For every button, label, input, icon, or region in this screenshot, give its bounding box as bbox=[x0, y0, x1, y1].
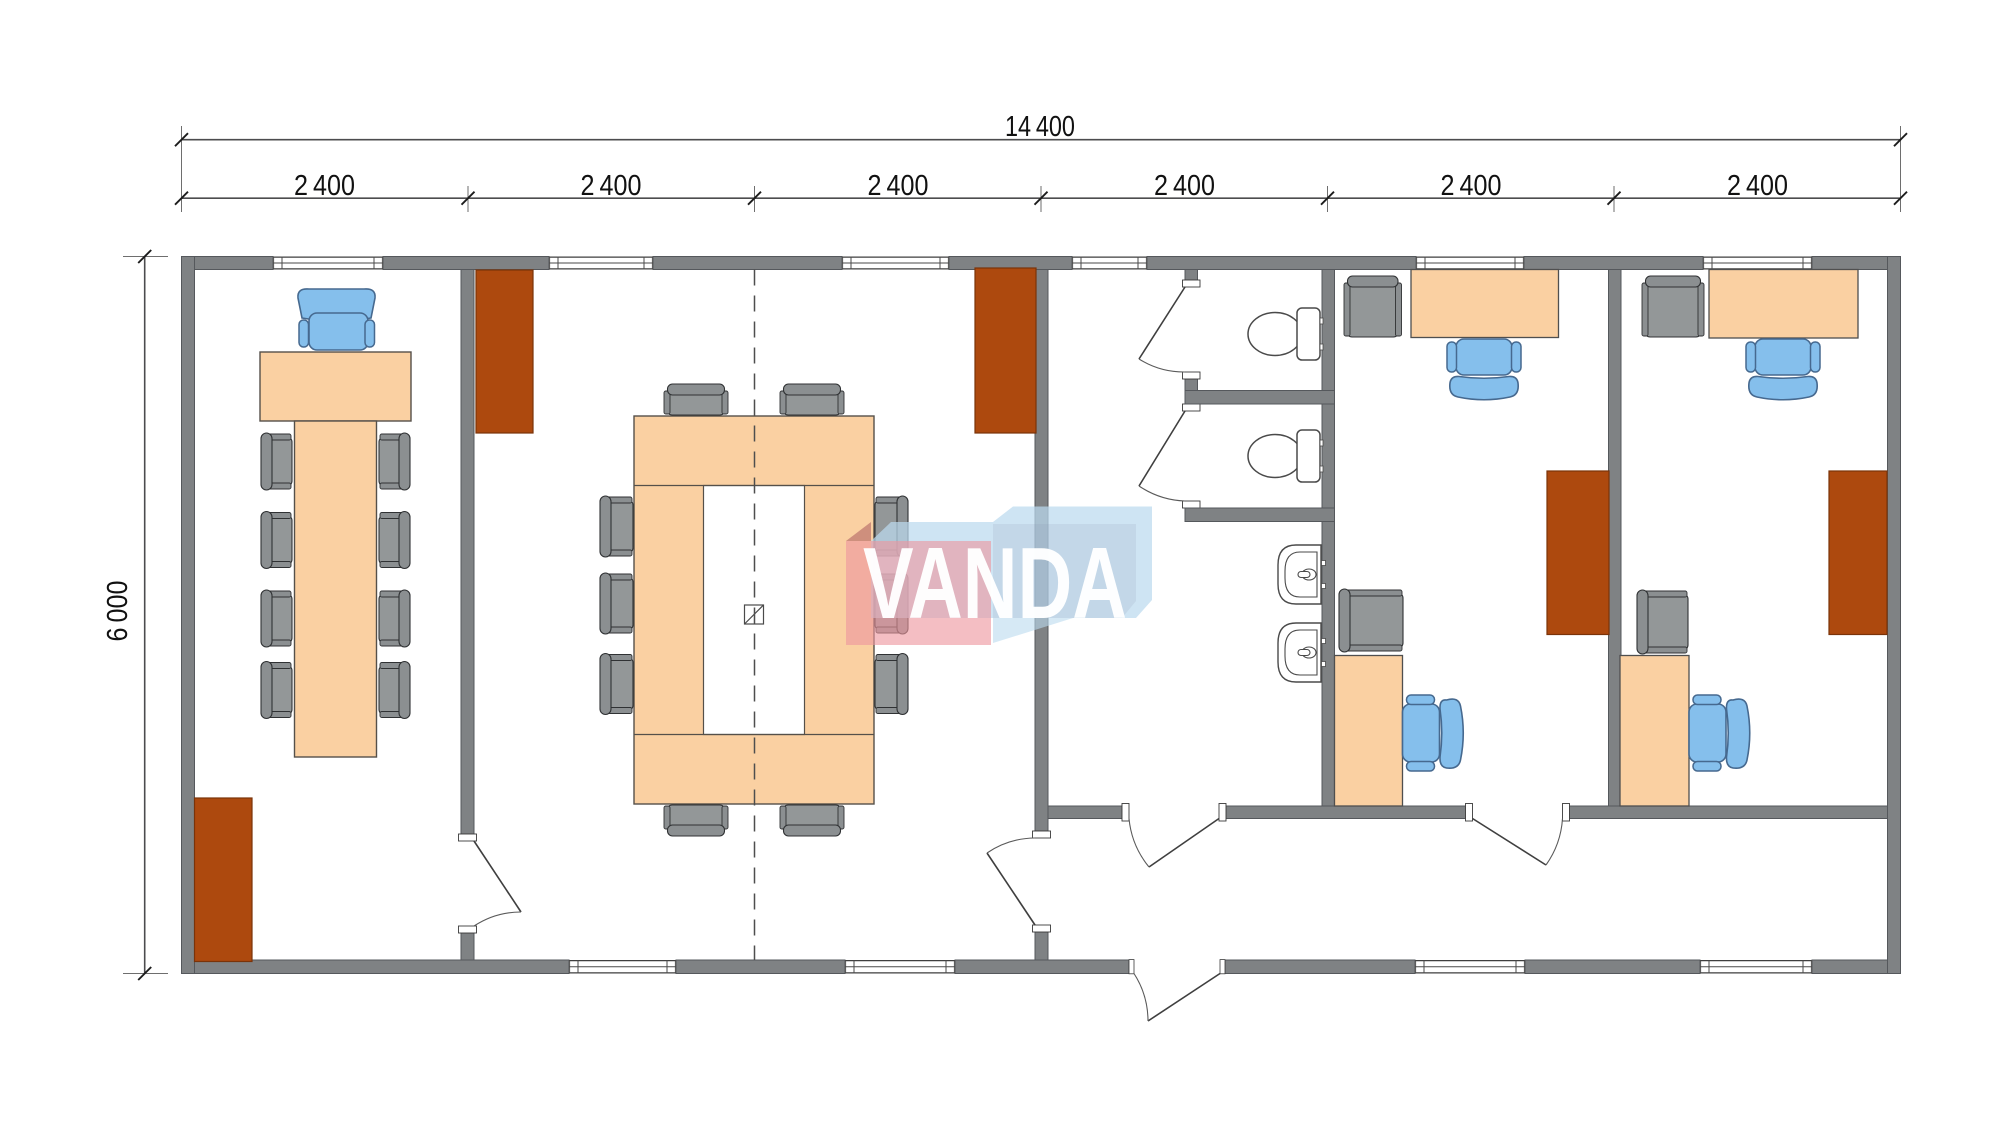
svg-text:2 400: 2 400 bbox=[294, 170, 355, 202]
svg-text:2 400: 2 400 bbox=[1441, 170, 1502, 202]
svg-text:2 400: 2 400 bbox=[1154, 170, 1215, 202]
svg-text:6 000: 6 000 bbox=[102, 581, 134, 642]
svg-text:2 400: 2 400 bbox=[868, 170, 929, 202]
svg-text:14 400: 14 400 bbox=[1005, 111, 1075, 143]
svg-text:VANDA: VANDA bbox=[863, 528, 1127, 640]
svg-text:2 400: 2 400 bbox=[1727, 170, 1788, 202]
svg-text:2 400: 2 400 bbox=[581, 170, 642, 202]
